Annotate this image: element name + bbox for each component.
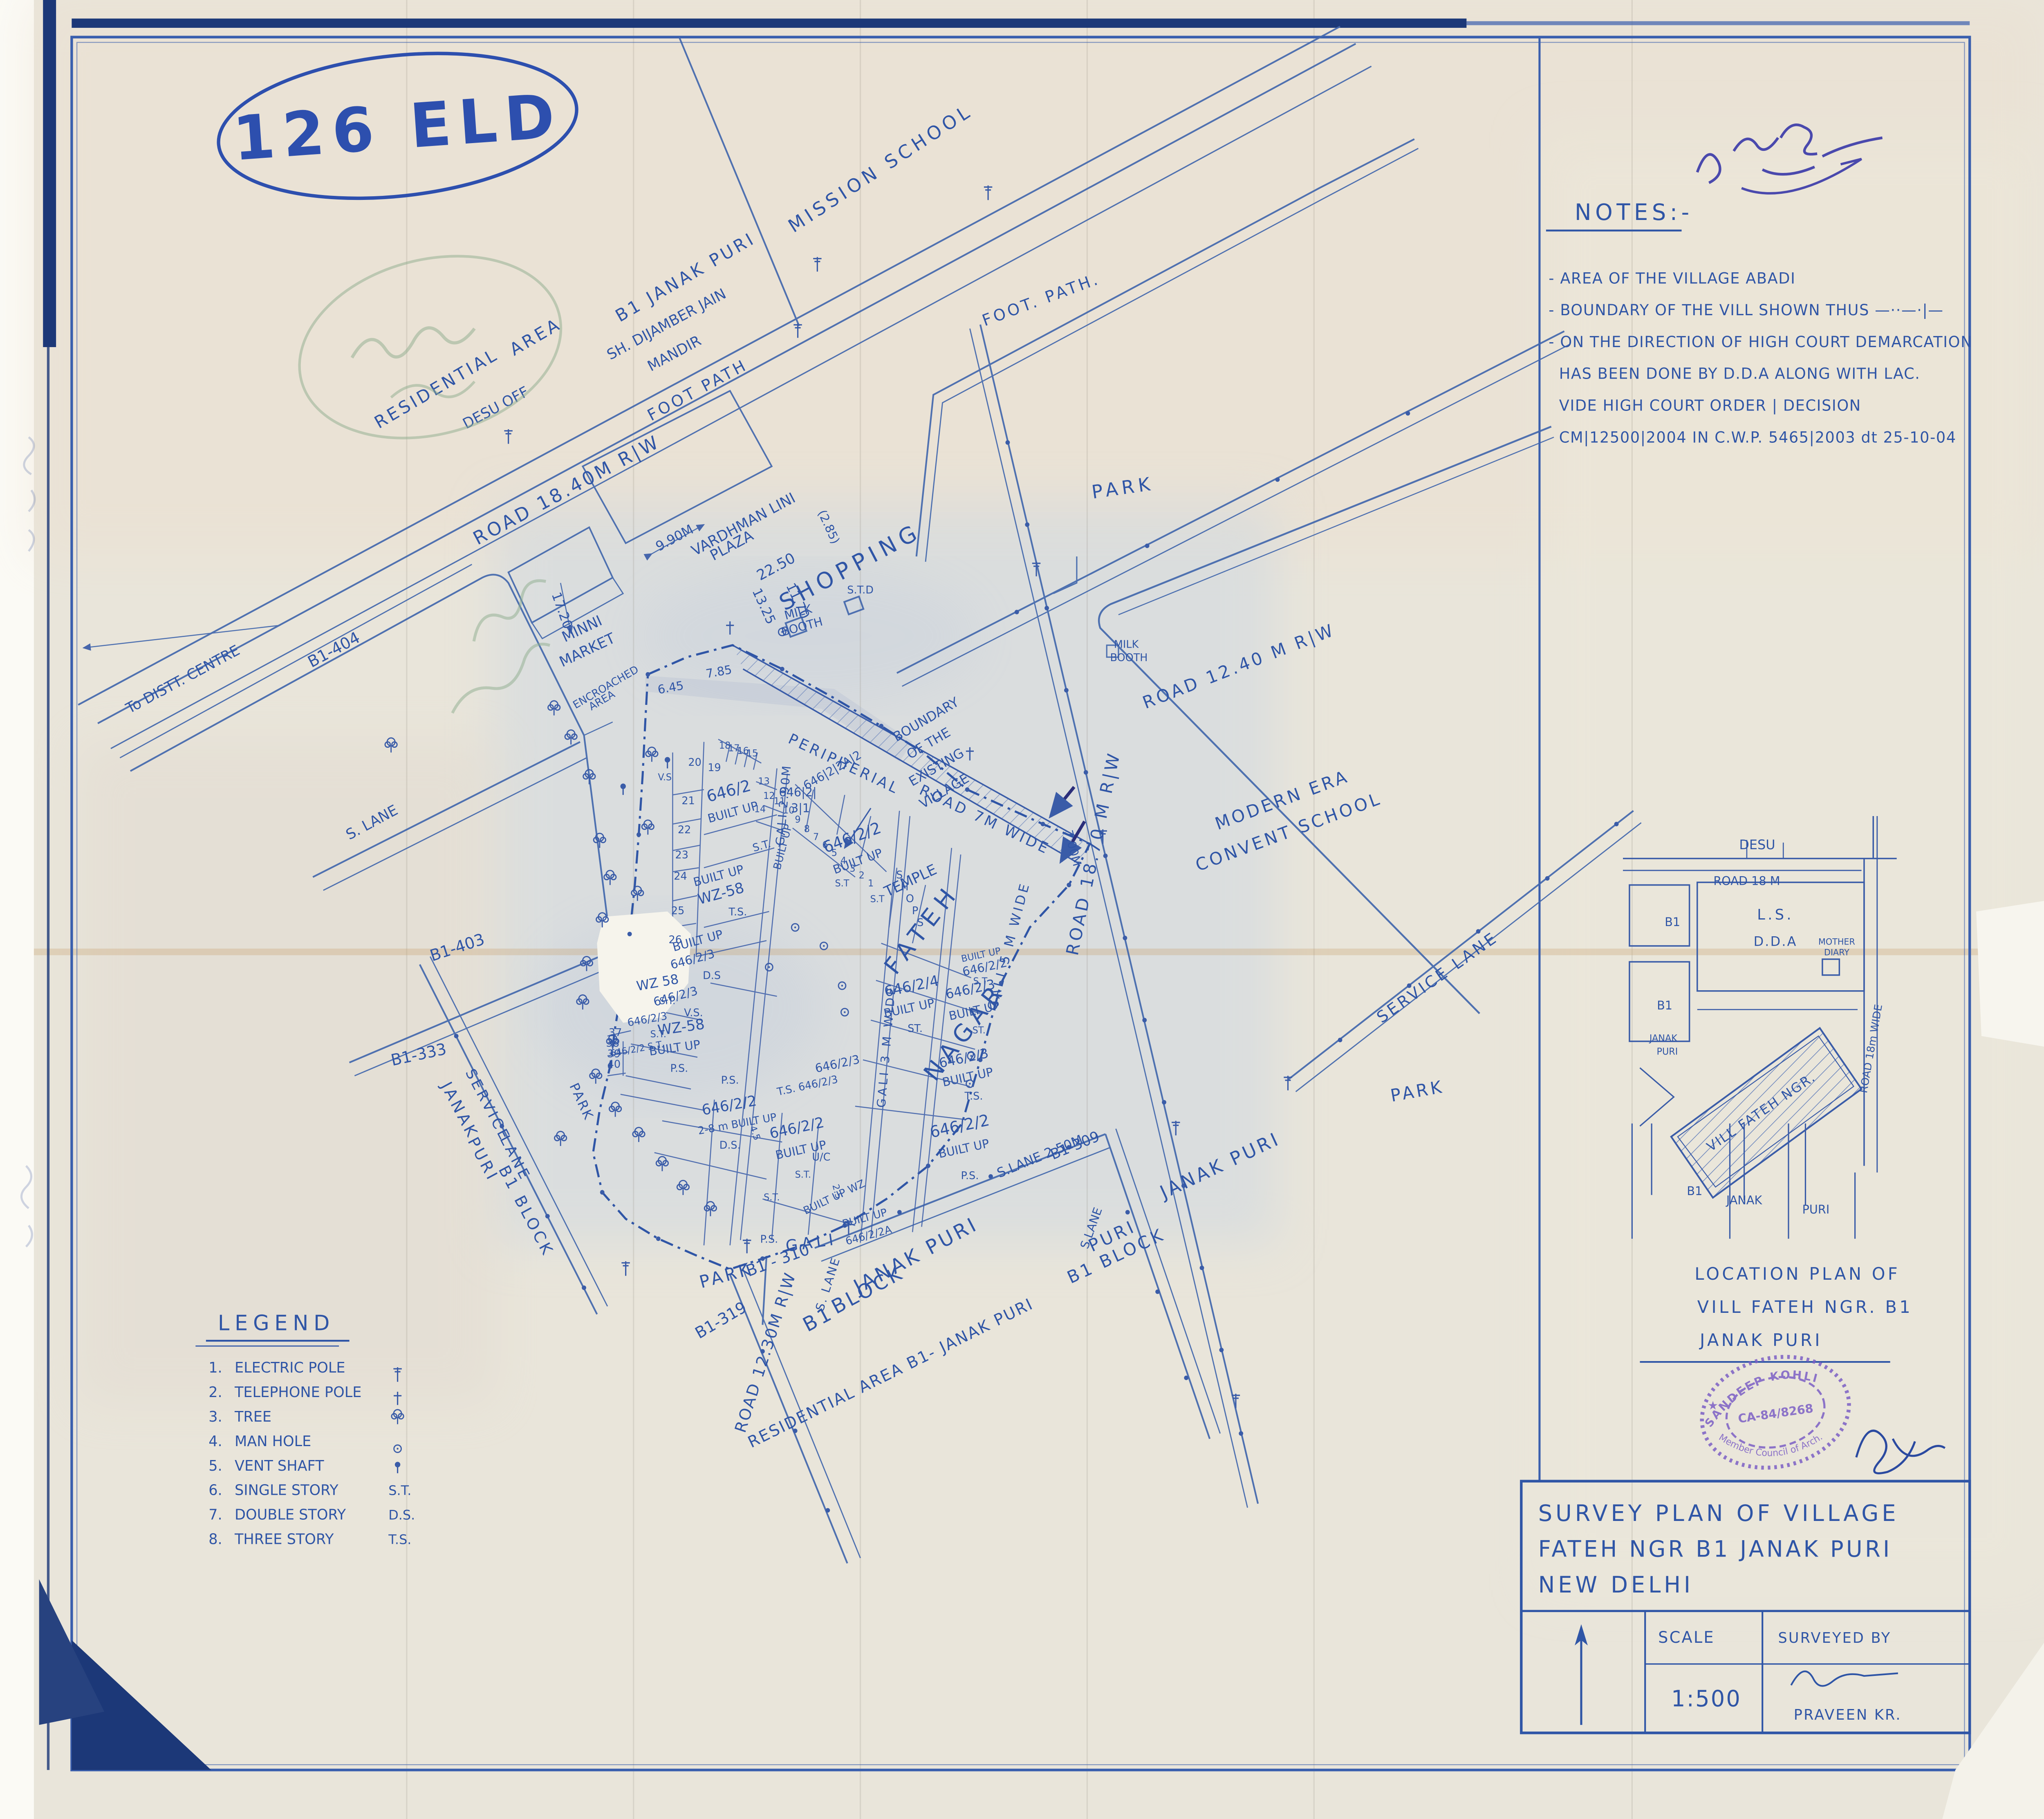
legend-text: 1. — [208, 1359, 222, 1376]
map-label: H — [901, 881, 908, 893]
dot-icon — [656, 1236, 661, 1241]
dot-icon — [1044, 606, 1049, 610]
map-label: D.S. — [719, 1139, 741, 1151]
note-line: - ON THE DIRECTION OF HIGH COURT DEMARCA… — [1549, 333, 1972, 351]
dot-icon — [1545, 876, 1550, 881]
map-label: 6 — [822, 840, 828, 850]
top-edge-band — [72, 18, 1466, 28]
svg-text:VILL FATEH NGR. B1: VILL FATEH NGR. B1 — [1697, 1297, 1913, 1317]
legend-text: 5. — [208, 1458, 222, 1474]
dot-icon — [637, 832, 641, 837]
map-label: 40 — [607, 1059, 621, 1071]
map-label: 10 — [783, 805, 794, 816]
map-label: 2 — [859, 870, 865, 881]
map-label: 20 — [688, 756, 701, 769]
map-label: S.T. — [659, 996, 675, 1007]
legend-title: LEGEND — [218, 1311, 335, 1335]
surveyor-name: PRAVEEN KR. — [1794, 1707, 1902, 1723]
map-label: 8 — [804, 824, 810, 834]
legend-text: 8. — [208, 1531, 222, 1548]
dot-icon — [645, 672, 650, 677]
map-label: JANAK — [1726, 1193, 1762, 1207]
map-label: D.D.A — [1754, 933, 1797, 949]
map-label: MILK — [1114, 638, 1139, 650]
map-label: DIARY — [1824, 947, 1849, 957]
map-label: O — [906, 893, 914, 905]
svg-text:JANAK PURI: JANAK PURI — [1699, 1330, 1822, 1350]
scale-label: SCALE — [1658, 1628, 1715, 1647]
dot-icon — [1123, 936, 1127, 940]
dot-icon — [965, 787, 970, 792]
dot-icon — [1184, 1375, 1188, 1380]
dot-icon — [988, 1174, 993, 1179]
map-label: T.S. — [964, 1090, 983, 1102]
map-label: L.S. — [1757, 906, 1794, 923]
legend-text: S.T. — [388, 1483, 411, 1498]
map-label: P.S. — [670, 1062, 688, 1074]
map-label: U/C — [812, 1151, 830, 1163]
map-label: S.T — [870, 894, 885, 905]
legend-text: SINGLE STORY — [235, 1482, 338, 1498]
survey-plan-sheet: MISSION SCHOOLFOOT PATHFOOT. PATH.ROAD 1… — [0, 0, 2044, 1819]
map-label: S.T.D — [847, 584, 874, 596]
dot-icon — [628, 932, 632, 936]
map-label: S.T. — [764, 1192, 780, 1203]
dot-icon — [454, 1034, 459, 1038]
legend-text: TREE — [234, 1409, 271, 1425]
legend-text: 6. — [208, 1482, 222, 1498]
map-label: 25 — [671, 905, 684, 917]
map-label: 7 — [813, 832, 819, 842]
map-label: B1 — [1657, 998, 1672, 1012]
legend-text: 4. — [208, 1433, 222, 1450]
dot-icon — [1145, 544, 1150, 548]
note-line: - BOUNDARY OF THE VILL SHOWN THUS —··—·|… — [1549, 301, 1943, 319]
dot-icon — [1275, 477, 1280, 482]
note-line: - AREA OF THE VILLAGE ABADI — [1549, 269, 1795, 287]
dot-icon — [582, 1285, 586, 1290]
dot-icon — [825, 1508, 830, 1512]
map-label: P.S. — [721, 1074, 739, 1086]
scale-value: 1:500 — [1671, 1685, 1741, 1712]
map-label: 13 — [758, 776, 769, 787]
left-edge-band — [43, 0, 56, 347]
map-label: DESU — [1739, 837, 1775, 852]
dot-icon — [1084, 770, 1088, 775]
map-label: T.S. — [728, 906, 747, 918]
dot-icon — [545, 1214, 550, 1218]
dot-icon — [879, 724, 883, 728]
dot-icon — [1025, 523, 1029, 527]
dot-icon — [1239, 1431, 1243, 1436]
dot-icon — [926, 1164, 930, 1168]
legend-text: DOUBLE STORY — [235, 1506, 346, 1523]
legend-text: 7. — [208, 1506, 222, 1523]
legend-text: 2. — [208, 1384, 222, 1401]
map-label: B1 — [1687, 1184, 1702, 1198]
dot-icon — [1405, 411, 1410, 415]
stamp-star: ★ — [1708, 1399, 1718, 1413]
note-line: CM|12500|2004 IN C.W.P. 5465|2003 dt 25-… — [1559, 428, 1957, 446]
map-label: 5 — [831, 848, 837, 858]
map-label: S.T — [835, 878, 849, 889]
dot-icon — [1064, 688, 1069, 693]
map-label: P.S. — [760, 1233, 778, 1245]
map-label: D.S — [703, 969, 721, 982]
dot-icon — [897, 1210, 902, 1214]
map-label: B1 — [1665, 915, 1680, 929]
legend-text: T.S. — [388, 1532, 411, 1547]
map-label: 24 — [674, 870, 687, 882]
map-label: 9 — [795, 814, 800, 825]
map-label: ST. — [908, 1023, 923, 1035]
dot-icon — [1338, 1038, 1342, 1042]
dot-icon — [1200, 1266, 1204, 1270]
map-label: S.T. — [795, 1170, 811, 1180]
map-label: P — [912, 905, 918, 917]
dot-icon — [600, 1190, 605, 1195]
map-label: JANAK — [1649, 1033, 1678, 1044]
map-label: 3 — [849, 864, 855, 874]
title-line-3: NEW DELHI — [1538, 1571, 1694, 1598]
title-line-2: FATEH NGR B1 JANAK PURI — [1538, 1536, 1892, 1562]
map-label: 1 — [868, 878, 874, 889]
legend-text: ELECTRIC POLE — [235, 1359, 345, 1376]
title-line-1: SURVEY PLAN OF VILLAGE — [1538, 1500, 1899, 1527]
map-label: MOTHER — [1818, 937, 1855, 947]
dot-icon — [1155, 1290, 1160, 1294]
surveyed-by-label: SURVEYED BY — [1778, 1630, 1891, 1646]
map-label: 12 — [763, 791, 775, 801]
legend-text: TELEPHONE POLE — [234, 1384, 361, 1401]
dot-icon — [1103, 854, 1108, 858]
map-label: S — [896, 869, 903, 881]
notes-title: NOTES:- — [1575, 199, 1693, 225]
dot-icon — [1006, 440, 1010, 445]
legend-text: 3. — [208, 1409, 222, 1425]
svg-text:LOCATION PLAN OF: LOCATION PLAN OF — [1694, 1264, 1900, 1284]
legend-text: THREE STORY — [234, 1531, 334, 1548]
dot-icon — [1041, 822, 1045, 826]
map-label: 21 — [681, 795, 695, 807]
torn-edge — [1976, 901, 2044, 1046]
map-label: S — [917, 917, 923, 929]
map-label: ST. — [973, 1025, 986, 1036]
legend-text: VENT SHAFT — [235, 1458, 324, 1474]
map-label: PURI — [1802, 1202, 1830, 1216]
map-label: BOOTH — [1110, 652, 1148, 664]
map-label: V.S — [658, 772, 672, 783]
map-label: 26 — [669, 934, 682, 946]
map-label: S.T — [973, 976, 988, 987]
note-line: HAS BEEN DONE BY D.D.A ALONG WITH LAC. — [1559, 365, 1921, 382]
legend-text: D.S. — [388, 1507, 415, 1523]
dot-icon — [1614, 822, 1619, 826]
note-line: VIDE HIGH COURT ORDER | DECISION — [1559, 397, 1861, 415]
map-label: P.S. — [961, 1170, 979, 1182]
map-label: 23 — [675, 849, 688, 861]
map-label: 4 — [840, 856, 846, 866]
dot-icon — [1015, 610, 1019, 615]
map-label: PURI — [1656, 1046, 1678, 1057]
dot-icon — [780, 667, 784, 671]
dot-icon — [1476, 929, 1481, 933]
dot-icon — [1142, 1018, 1147, 1023]
map-label: 14 — [754, 804, 766, 814]
map-label: ROAD 18 M — [1713, 874, 1780, 888]
dot-icon — [1162, 1100, 1166, 1104]
dot-icon — [1219, 1348, 1224, 1352]
map-label: 15 — [746, 748, 758, 759]
map-label: 22 — [678, 824, 691, 836]
dot-icon — [1067, 883, 1071, 887]
map-label: 19 — [708, 762, 721, 774]
legend-text: MAN HOLE — [235, 1433, 311, 1450]
dot-icon — [1125, 1210, 1130, 1214]
